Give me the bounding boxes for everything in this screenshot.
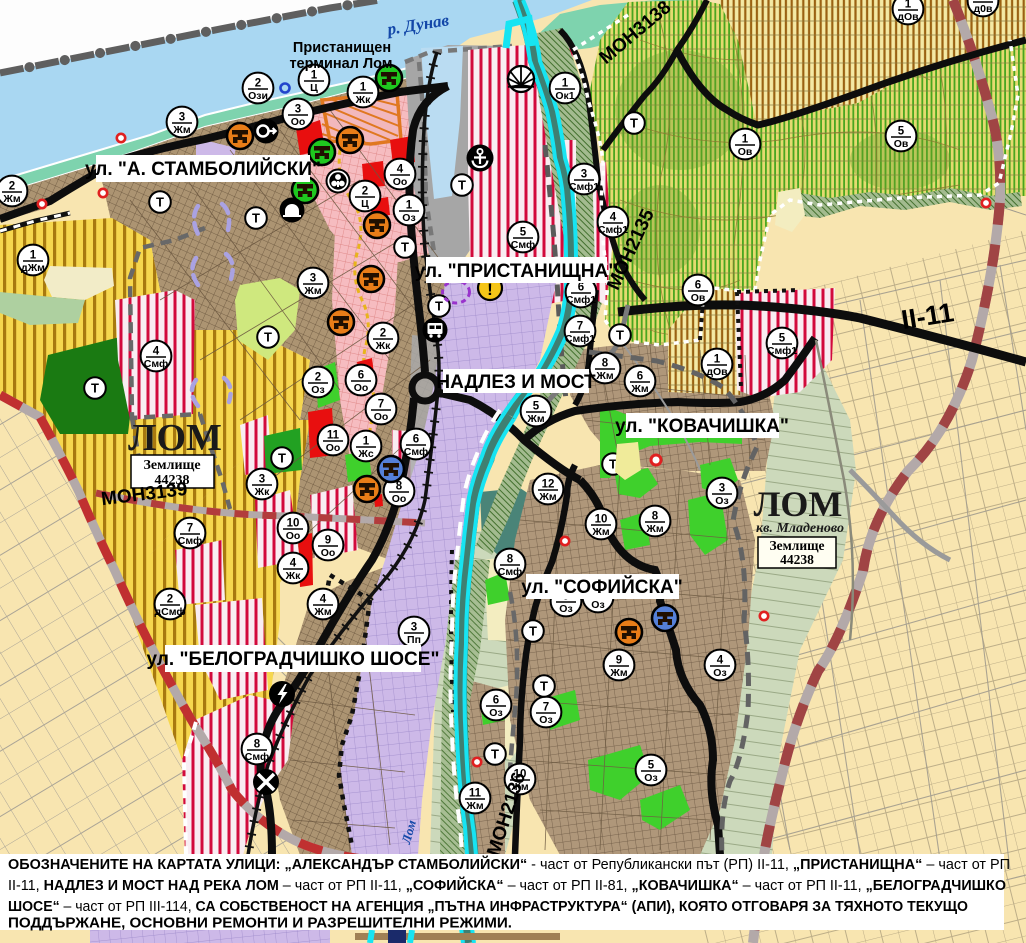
svg-text:4: 4 — [290, 558, 297, 570]
svg-text:Ок1: Ок1 — [555, 90, 574, 102]
svg-text:4: 4 — [153, 346, 160, 358]
svg-text:2: 2 — [380, 328, 386, 340]
svg-text:44238: 44238 — [780, 552, 814, 567]
svg-text:Жм: Жм — [538, 491, 556, 503]
svg-text:дЖм: дЖм — [21, 262, 45, 274]
svg-text:Жк: Жк — [254, 486, 270, 498]
svg-text:8: 8 — [602, 358, 609, 370]
svg-text:8: 8 — [652, 511, 659, 523]
svg-text:5: 5 — [898, 126, 905, 138]
svg-text:1: 1 — [742, 134, 749, 146]
svg-text:ул. "А. СТАМБОЛИЙСКИ": ул. "А. СТАМБОЛИЙСКИ" — [85, 158, 321, 180]
svg-text:6: 6 — [413, 434, 419, 446]
svg-text:Смф: Смф — [245, 751, 269, 763]
svg-text:7: 7 — [543, 702, 549, 714]
svg-text:4: 4 — [397, 164, 404, 176]
svg-text:Ов: Ов — [691, 292, 706, 304]
svg-text:5: 5 — [520, 227, 527, 239]
svg-text:1: 1 — [406, 200, 413, 212]
svg-text:Оз: Оз — [489, 707, 502, 719]
svg-text:6: 6 — [695, 280, 701, 292]
svg-text:1: 1 — [905, 0, 912, 11]
svg-text:Т: Т — [264, 330, 272, 345]
svg-text:4: 4 — [610, 212, 617, 224]
svg-text:Т: Т — [630, 116, 638, 131]
svg-text:4: 4 — [717, 655, 724, 667]
svg-text:Оо: Оо — [326, 442, 341, 454]
svg-text:10: 10 — [287, 518, 300, 530]
svg-text:5: 5 — [779, 333, 786, 345]
svg-text:6: 6 — [637, 371, 643, 383]
svg-text:7: 7 — [187, 523, 193, 535]
svg-text:Жм: Жм — [630, 383, 648, 395]
svg-text:Оо: Оо — [291, 116, 306, 128]
svg-text:Т: Т — [278, 451, 286, 466]
svg-text:Смф1: Смф1 — [566, 294, 596, 306]
svg-text:Жм: Жм — [645, 523, 663, 535]
svg-text:1: 1 — [30, 250, 37, 262]
svg-text:Оз: Оз — [402, 212, 415, 224]
svg-text:9: 9 — [616, 655, 622, 667]
svg-text:3: 3 — [179, 112, 185, 124]
svg-text:Жм: Жм — [526, 413, 544, 425]
svg-text:Жм: Жм — [313, 606, 331, 618]
svg-text:1: 1 — [714, 354, 721, 366]
svg-text:2: 2 — [315, 372, 321, 384]
svg-text:ПОДДЪРЖАНЕ, ОСНОВНИ РЕМОНТИ И: ПОДДЪРЖАНЕ, ОСНОВНИ РЕМОНТИ И РАЗРЕШИТЕЛ… — [8, 915, 512, 932]
svg-text:8: 8 — [396, 481, 403, 493]
svg-text:Смф1: Смф1 — [569, 181, 599, 193]
svg-text:Т: Т — [91, 381, 99, 396]
svg-text:9: 9 — [325, 535, 331, 547]
svg-text:Смф: Смф — [144, 358, 168, 370]
svg-text:Жм: Жм — [609, 667, 627, 679]
svg-text:8: 8 — [254, 739, 261, 751]
svg-text:3: 3 — [411, 622, 417, 634]
svg-text:Оз: Оз — [713, 667, 726, 679]
svg-text:5: 5 — [648, 760, 655, 772]
svg-text:1: 1 — [360, 82, 367, 94]
svg-text:3: 3 — [295, 104, 301, 116]
svg-text:дОв: дОв — [897, 11, 919, 23]
svg-text:ул. "ПРИСТАНИЩНА": ул. "ПРИСТАНИЩНА" — [415, 261, 618, 282]
svg-text:Т: Т — [435, 299, 443, 314]
svg-text:ул. "КОВАЧИШКА": ул. "КОВАЧИШКА" — [615, 416, 789, 437]
svg-text:Ц: Ц — [310, 82, 318, 94]
svg-text:Смф1: Смф1 — [767, 345, 797, 357]
svg-text:Оо: Оо — [354, 382, 369, 394]
svg-text:Ози: Ози — [248, 90, 268, 102]
svg-text:1: 1 — [562, 78, 569, 90]
svg-text:1: 1 — [363, 436, 370, 448]
svg-text:10: 10 — [595, 514, 608, 526]
svg-text:2: 2 — [9, 181, 15, 193]
svg-text:Оз: Оз — [311, 384, 324, 396]
svg-text:НАДЛЕЗ И МОСТ: НАДЛЕЗ И МОСТ — [436, 372, 596, 393]
svg-text:д0в: д0в — [974, 3, 994, 15]
svg-text:Т: Т — [616, 328, 624, 343]
svg-text:Жм: Жм — [591, 526, 609, 538]
svg-text:Ц: Ц — [361, 198, 369, 210]
svg-text:Т: Т — [491, 747, 499, 762]
svg-text:ул. "БЕЛОГРАДЧИШКО ШОСЕ": ул. "БЕЛОГРАДЧИШКО ШОСЕ" — [147, 649, 440, 670]
svg-text:Землище: Землище — [769, 538, 824, 553]
svg-text:8: 8 — [507, 554, 514, 566]
svg-text:ШОСЕ“ – част от РП III-114, СА: ШОСЕ“ – част от РП III-114, СА СОБСТВЕНО… — [8, 898, 968, 915]
svg-text:Жк: Жк — [375, 340, 391, 352]
svg-text:6: 6 — [493, 695, 499, 707]
svg-text:7: 7 — [577, 321, 583, 333]
svg-text:Пристанищен: Пристанищен — [293, 40, 391, 56]
svg-text:3: 3 — [259, 474, 265, 486]
svg-text:6: 6 — [358, 370, 364, 382]
svg-text:Т: Т — [252, 211, 260, 226]
svg-text:Оо: Оо — [321, 547, 336, 559]
svg-text:Оо: Оо — [286, 530, 301, 542]
svg-text:кв. Младеново: кв. Младеново — [756, 521, 844, 536]
svg-text:Смф1: Смф1 — [598, 224, 628, 236]
svg-text:7: 7 — [378, 399, 384, 411]
svg-text:II-11, НАДЛЕЗ И МОСТ НАД РЕКА: II-11, НАДЛЕЗ И МОСТ НАД РЕКА ЛОМ – част… — [8, 876, 1006, 894]
svg-text:Смф: Смф — [511, 239, 535, 251]
svg-text:Т: Т — [156, 195, 164, 210]
svg-text:4: 4 — [320, 594, 327, 606]
svg-text:терминал Лом: терминал Лом — [289, 56, 392, 72]
svg-text:Т: Т — [401, 240, 409, 255]
svg-text:Оз: Оз — [559, 603, 572, 615]
svg-text:ул. "СОФИЙСКА": ул. "СОФИЙСКА" — [521, 576, 683, 598]
svg-text:Жк: Жк — [355, 94, 371, 106]
svg-text:Жм: Жм — [172, 124, 190, 136]
svg-text:ЛОМ: ЛОМ — [128, 417, 222, 459]
svg-text:Оз: Оз — [715, 495, 728, 507]
svg-text:3: 3 — [719, 483, 725, 495]
svg-text:Оо: Оо — [392, 493, 407, 505]
svg-text:дСмф: дСмф — [154, 606, 185, 618]
svg-text:дОв: дОв — [706, 366, 728, 378]
svg-text:Жм: Жм — [2, 193, 20, 205]
svg-text:Ов: Ов — [894, 138, 909, 150]
svg-text:Землище: Землище — [143, 458, 200, 473]
svg-text:Т: Т — [540, 679, 548, 694]
svg-text:2: 2 — [255, 78, 261, 90]
svg-text:Смф1: Смф1 — [565, 333, 595, 345]
svg-text:Оо: Оо — [374, 411, 389, 423]
svg-text:Смф: Смф — [178, 535, 202, 547]
svg-text:Пп: Пп — [407, 634, 421, 646]
svg-text:2: 2 — [167, 594, 173, 606]
svg-text:11: 11 — [327, 430, 340, 442]
svg-text:Т: Т — [529, 624, 537, 639]
svg-text:Ов: Ов — [738, 146, 753, 158]
svg-text:5: 5 — [533, 401, 540, 413]
svg-text:3: 3 — [310, 273, 316, 285]
svg-text:Оз: Оз — [644, 772, 657, 784]
svg-text:Смф: Смф — [498, 566, 522, 578]
svg-text:Жк: Жк — [285, 570, 301, 582]
svg-text:Оз: Оз — [591, 599, 604, 611]
svg-text:Жм: Жм — [465, 800, 483, 812]
svg-text:Жм: Жм — [595, 370, 613, 382]
svg-text:Оз: Оз — [539, 714, 552, 726]
svg-text:Жм: Жм — [303, 285, 321, 297]
svg-text:Жс: Жс — [357, 448, 373, 460]
svg-text:11: 11 — [469, 788, 482, 800]
svg-text:Т: Т — [458, 178, 466, 193]
svg-text:2: 2 — [362, 186, 368, 198]
svg-text:3: 3 — [581, 169, 587, 181]
svg-text:ЛОМ: ЛОМ — [754, 484, 843, 524]
svg-text:12: 12 — [542, 479, 555, 491]
svg-text:Смф: Смф — [404, 446, 428, 458]
svg-text:Оо: Оо — [393, 176, 408, 188]
svg-text:6: 6 — [578, 282, 584, 294]
svg-text:ОБОЗНАЧЕНИТЕ НА КАРТАТА УЛИЦИ:: ОБОЗНАЧЕНИТЕ НА КАРТАТА УЛИЦИ: „АЛЕКСАНД… — [8, 855, 1010, 873]
